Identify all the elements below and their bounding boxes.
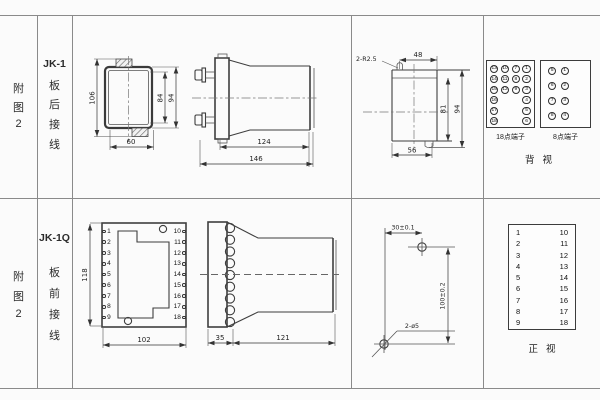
dim-hole-offset-h: 30±0.1: [391, 225, 414, 232]
socket-terminal-left: 9: [102, 314, 118, 322]
terminal-circle: 2: [522, 75, 530, 83]
socket-terminal-right: 18: [166, 314, 186, 322]
dim-outer-height: 94: [168, 93, 176, 102]
wiring-char: 接: [37, 306, 72, 322]
dim-inner-height: 84: [157, 93, 165, 102]
socket-terminal-right: 10: [166, 228, 186, 236]
terminal-dot: [102, 294, 106, 298]
wiring-char: 接: [37, 116, 72, 132]
terminal-circle: 14: [490, 75, 498, 83]
terminal-circle: 2: [561, 82, 569, 90]
terminal-box-18-label: 18点端子: [483, 132, 538, 142]
dim-socket-body-length: 121: [276, 334, 289, 342]
terminal-dot: [182, 283, 186, 287]
terminal-table: 110211312413514615716817918: [508, 224, 576, 330]
dim-hole-count: 2-ø5: [405, 323, 419, 330]
terminal-circle: 5: [522, 107, 530, 115]
terminal-dot: [182, 316, 186, 320]
wiring-char: 线: [37, 327, 72, 343]
wiring-char: 前: [37, 285, 72, 301]
terminal-circle: 11: [501, 75, 509, 83]
model-name-jk1q: JK-1Q: [37, 232, 72, 244]
terminal-circle: 4: [561, 112, 569, 120]
terminal-circle: 16: [490, 96, 498, 104]
socket-terminal-right: 17: [166, 303, 186, 311]
terminal-dot: [182, 240, 186, 244]
terminal-table-row: 312: [509, 250, 575, 261]
terminal-circle: 1: [561, 67, 569, 75]
terminal-table-row: 514: [509, 272, 575, 283]
terminal-dot: [182, 273, 186, 277]
socket-terminal-left: 4: [102, 260, 118, 268]
figure-label-char: 图: [0, 99, 37, 115]
terminal-circle: 7: [548, 97, 556, 105]
terminal-dot: [102, 273, 106, 277]
terminal-circle: 12: [501, 86, 509, 94]
rear-view-label: 背视: [486, 152, 591, 166]
terminal-box-8: 51627384: [540, 60, 591, 128]
terminal-dot: [182, 251, 186, 255]
dim-overall-length: 146: [249, 155, 263, 163]
socket-side-view-drawing: 35 121: [198, 214, 346, 354]
terminal-circle: 1: [522, 65, 530, 73]
terminal-dot: [102, 316, 106, 320]
terminal-table-row: 413: [509, 261, 575, 272]
table-rule-v4: [483, 15, 484, 388]
terminal-dot: [182, 294, 186, 298]
terminal-circle: 8: [512, 75, 520, 83]
figure-label-char: 附: [0, 268, 37, 284]
socket-terminal-right: 11: [166, 238, 186, 246]
terminal-dot: [102, 230, 106, 234]
socket-terminal-left: 7: [102, 292, 118, 300]
terminal-circle: 7: [512, 65, 520, 73]
dim-overall-height: 94: [454, 104, 462, 113]
terminal-circle: 4: [522, 96, 530, 104]
terminal-dot: [102, 262, 106, 266]
terminal-table-row: 716: [509, 295, 575, 306]
model-name-jk1: JK-1: [37, 58, 72, 70]
socket-terminal-right: 13: [166, 260, 186, 268]
table-rule-v3: [351, 15, 352, 388]
wiring-char: 板: [37, 264, 72, 280]
dim-socket-width: 102: [137, 336, 150, 344]
wiring-char: 线: [37, 136, 72, 152]
socket-terminal-left: 8: [102, 303, 118, 311]
terminal-box-8-label: 8点端子: [538, 132, 593, 142]
dim-body-length: 124: [257, 138, 271, 146]
terminal-circle: 18: [490, 117, 498, 125]
terminal-table-row: 615: [509, 283, 575, 294]
socket-terminal-left: 6: [102, 281, 118, 289]
socket-terminal-right: 15: [166, 281, 186, 289]
table-rule-bottom: [0, 388, 600, 389]
svg-defs: [0, 0, 1, 1]
socket-terminal-right: 14: [166, 271, 186, 279]
relay-front-view-drawing: 106 84 94 60: [88, 52, 200, 164]
terminal-dot: [182, 305, 186, 309]
terminal-dot: [102, 240, 106, 244]
terminal-circle: 3: [561, 97, 569, 105]
dim-inner-height: 81: [440, 105, 448, 114]
dim-overall-height: 106: [89, 91, 97, 105]
table-rule-v2: [72, 15, 73, 388]
terminal-circle: 3: [522, 86, 530, 94]
terminal-circle: 6: [522, 117, 530, 125]
mounting-bolt-bottom: [195, 113, 215, 127]
terminal-circle: 9: [512, 86, 520, 94]
relay-side-view-drawing: 124 146: [192, 50, 322, 172]
socket-terminal-left: 5: [102, 271, 118, 279]
terminal-circle: 13: [490, 65, 498, 73]
dim-flange-depth: 35: [216, 334, 225, 342]
dim-corner-radius: 2-R2.5: [356, 56, 377, 63]
terminal-table-row: 110: [509, 227, 575, 238]
terminal-table-rows: 110211312413514615716817918: [509, 227, 575, 329]
dim-hole-offset-v: 100±0.2: [440, 282, 447, 309]
dim-bottom-width: 56: [408, 147, 417, 155]
terminal-circle: 10: [501, 65, 509, 73]
terminal-circle: 17: [490, 107, 498, 115]
terminal-table-row: 211: [509, 238, 575, 249]
drilling-plan-drawing: 30±0.1 2-ø5 100±0.2: [356, 212, 480, 362]
terminal-table-row: 918: [509, 317, 575, 328]
terminal-circle: 6: [548, 82, 556, 90]
terminal-dot: [102, 251, 106, 255]
figure-label-char: 图: [0, 288, 37, 304]
figure-label-char: 附: [0, 80, 37, 96]
terminal-dot: [182, 262, 186, 266]
socket-terminal-left: 1: [102, 228, 118, 236]
table-rule-top: [0, 15, 600, 16]
dim-top-width: 48: [414, 51, 423, 59]
socket-terminal-left: 2: [102, 238, 118, 246]
wiring-char: 板: [37, 77, 72, 93]
terminal-dot: [102, 305, 106, 309]
terminal-circle: 8: [548, 112, 556, 120]
figure-label-char: 2: [0, 118, 37, 130]
terminal-table-row: 817: [509, 306, 575, 317]
figure-page: 附 图 2 JK-1 板 后 接 线 106 84 94 60: [0, 0, 600, 400]
panel-cutout-drawing: 48 2-R2.5 81 94 56: [355, 48, 483, 178]
terminal-circle: 15: [490, 86, 498, 94]
terminal-circle: 5: [548, 67, 556, 75]
terminal-dot: [182, 230, 186, 234]
front-view-label: 正视: [500, 341, 584, 355]
socket-terminal-right: 12: [166, 249, 186, 257]
figure-label-char: 2: [0, 308, 37, 320]
dim-socket-height: 118: [81, 268, 89, 281]
terminal-box-18: 131071141182151293164175186: [486, 60, 535, 128]
socket-terminal-left: 3: [102, 249, 118, 257]
mounting-bolt-top: [195, 68, 215, 82]
socket-terminal-right: 16: [166, 292, 186, 300]
table-rule-middle: [0, 198, 600, 199]
dim-width: 60: [127, 138, 136, 146]
wiring-char: 后: [37, 96, 72, 112]
terminal-dot: [102, 283, 106, 287]
